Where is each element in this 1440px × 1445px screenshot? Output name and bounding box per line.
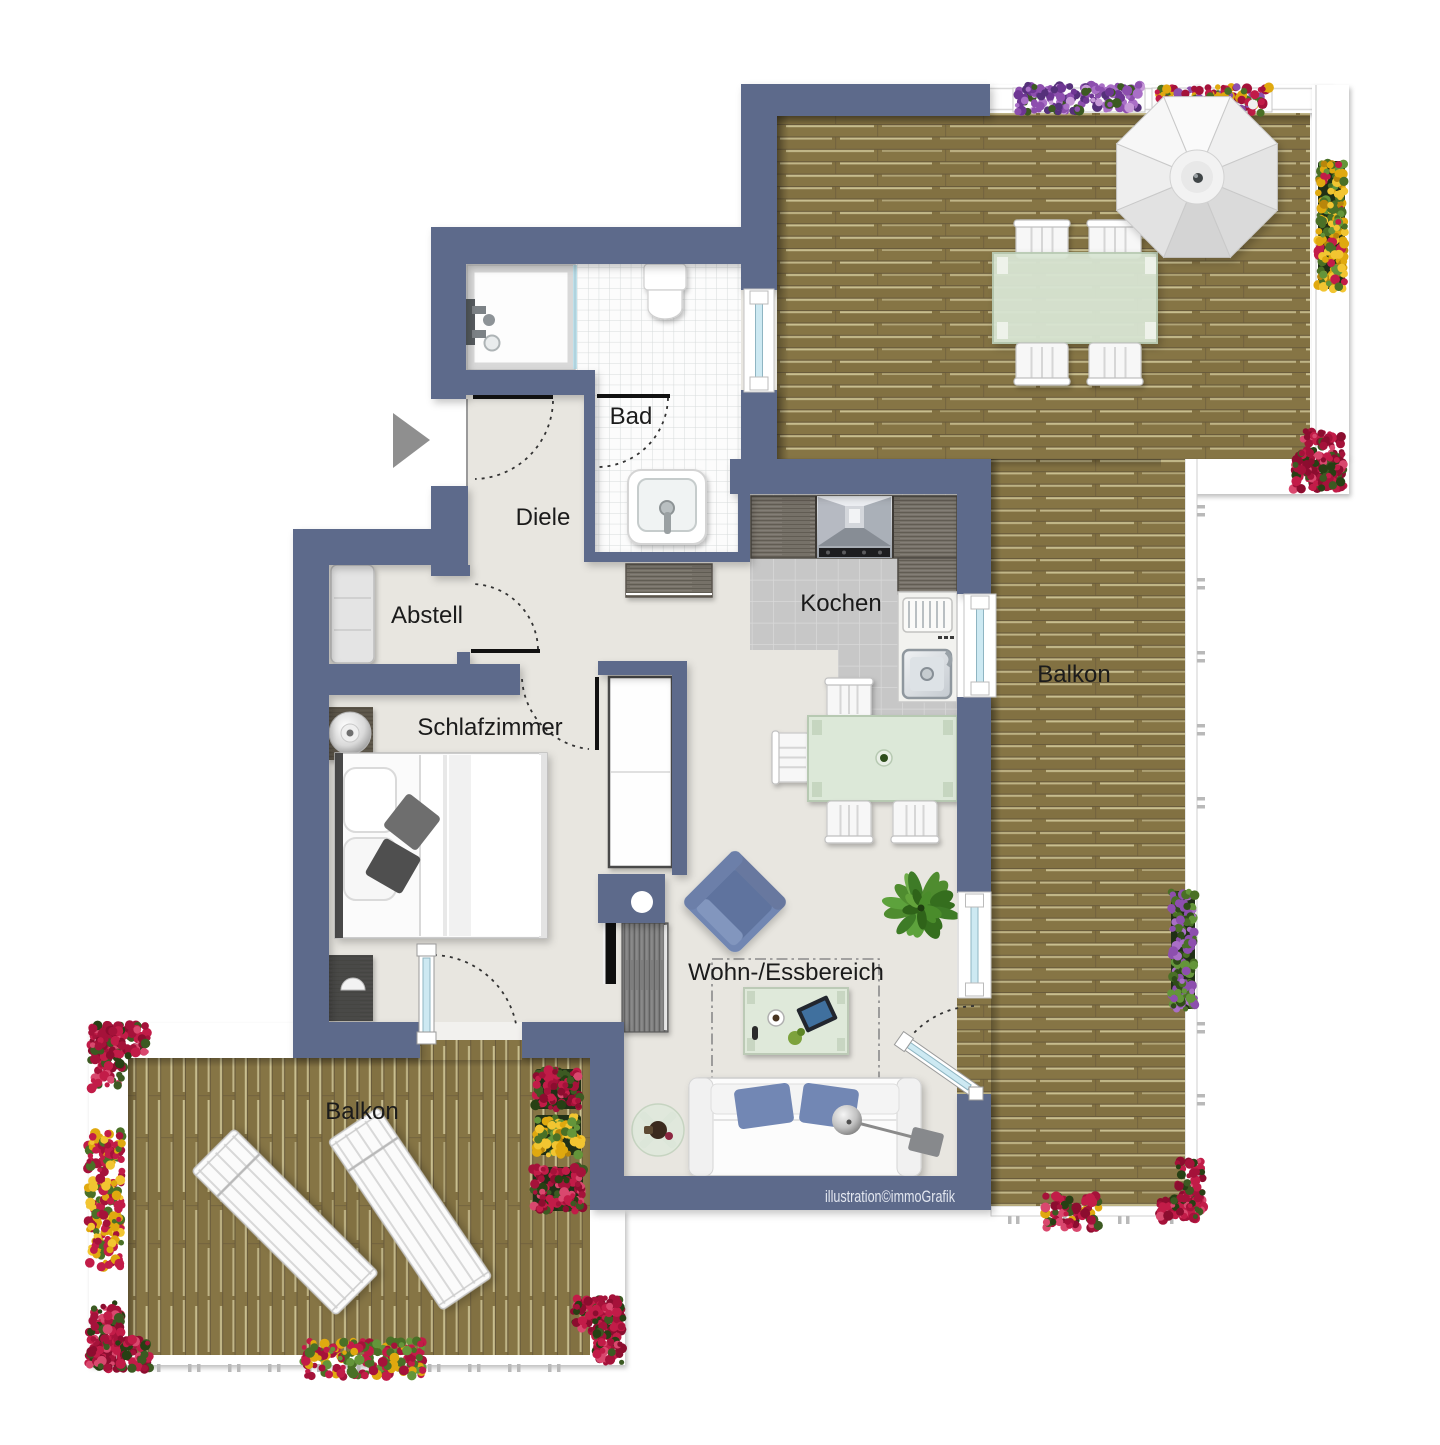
svg-text:Abstell: Abstell xyxy=(391,602,463,629)
svg-text:Balkon: Balkon xyxy=(325,1098,398,1125)
svg-text:Diele: Diele xyxy=(516,504,571,531)
svg-text:Schlafzimmer: Schlafzimmer xyxy=(417,714,562,741)
svg-text:Kochen: Kochen xyxy=(800,590,881,617)
svg-text:Balkon: Balkon xyxy=(1037,661,1110,688)
svg-text:illustration©immoGrafik: illustration©immoGrafik xyxy=(825,1188,956,1206)
svg-text:Bad: Bad xyxy=(610,403,653,430)
svg-text:Wohn-/Essbereich: Wohn-/Essbereich xyxy=(688,959,884,986)
